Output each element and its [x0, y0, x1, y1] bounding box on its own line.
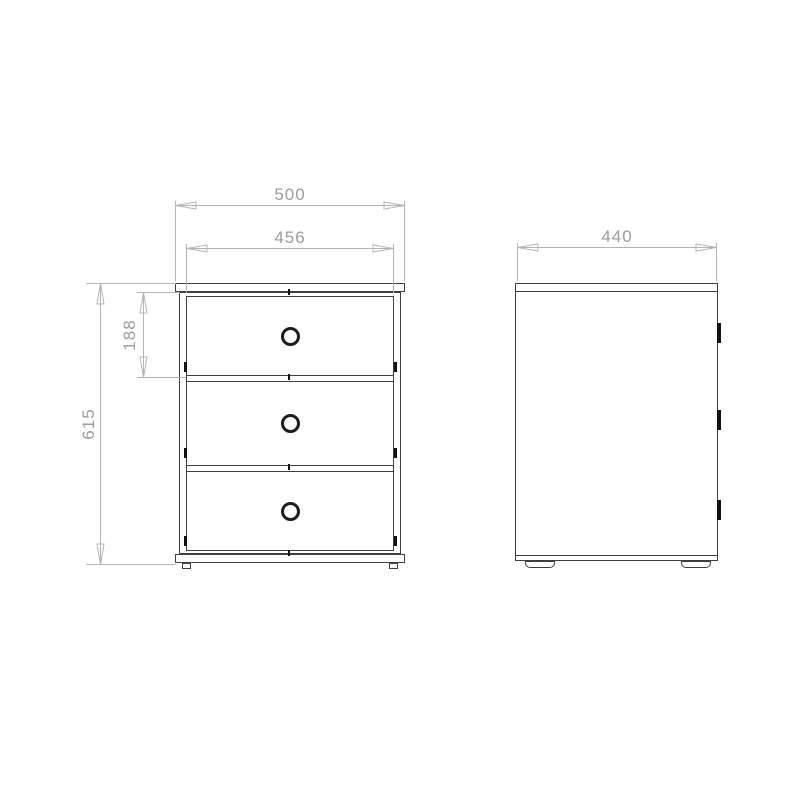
joint-mark — [288, 550, 290, 556]
dim-arrow-left-icon — [517, 243, 539, 252]
dim-overall-width-label: 500 — [260, 187, 320, 203]
front-bottom-board — [175, 554, 405, 563]
dim-arrow-up-icon — [139, 292, 148, 314]
front-foot-left — [182, 563, 191, 569]
dim-top-drawer-height-label: 188 — [122, 305, 138, 365]
extension-line — [137, 377, 186, 378]
side-bottom-board-edge — [515, 555, 718, 556]
runner-mark — [184, 362, 187, 372]
dim-arrow-down-icon — [139, 356, 148, 378]
runner-mark — [184, 536, 187, 546]
drawer-knob-icon — [281, 327, 300, 346]
dim-arrow-up-icon — [96, 283, 105, 305]
dim-arrow-right-icon — [372, 244, 394, 253]
dim-arrow-left-icon — [175, 201, 197, 210]
dim-line — [186, 248, 394, 249]
dim-overall-height-label: 615 — [81, 394, 97, 454]
drawer-front-2 — [186, 381, 394, 466]
drawer-edge-mark — [717, 323, 721, 343]
front-top-board — [175, 283, 405, 292]
runner-mark — [394, 536, 397, 546]
drawer-edge-mark — [717, 410, 721, 430]
side-top-board-edge — [515, 291, 718, 292]
extension-line — [86, 283, 176, 284]
joint-mark — [288, 289, 290, 295]
dim-arrow-left-icon — [186, 244, 208, 253]
extension-line — [137, 292, 180, 293]
side-panel — [515, 283, 718, 561]
extension-line — [186, 244, 187, 293]
dim-inner-width-label: 456 — [260, 230, 320, 246]
drawer-knob-icon — [281, 502, 300, 521]
dim-line — [175, 205, 405, 206]
dim-line — [517, 247, 717, 248]
runner-mark — [184, 448, 187, 458]
drawer-knob-icon — [281, 414, 300, 433]
dim-arrow-down-icon — [96, 543, 105, 565]
drawer-front-1 — [186, 296, 394, 376]
dim-arrow-right-icon — [695, 243, 717, 252]
extension-line — [517, 243, 518, 281]
side-foot-right — [681, 561, 711, 568]
technical-drawing: 500 456 615 — [0, 0, 800, 800]
runner-mark — [394, 448, 397, 458]
extension-line — [393, 244, 394, 293]
runner-mark — [394, 362, 397, 372]
extension-line — [175, 201, 176, 281]
joint-mark — [288, 464, 290, 470]
side-foot-left — [525, 561, 555, 568]
extension-line — [716, 243, 717, 281]
joint-mark — [288, 374, 290, 380]
drawer-edge-mark — [717, 500, 721, 520]
dim-line — [100, 283, 101, 565]
dim-depth-label: 440 — [587, 229, 647, 245]
front-foot-right — [389, 563, 398, 569]
drawer-front-3 — [186, 471, 394, 551]
extension-line — [86, 564, 176, 565]
dim-arrow-right-icon — [383, 201, 405, 210]
extension-line — [404, 201, 405, 281]
